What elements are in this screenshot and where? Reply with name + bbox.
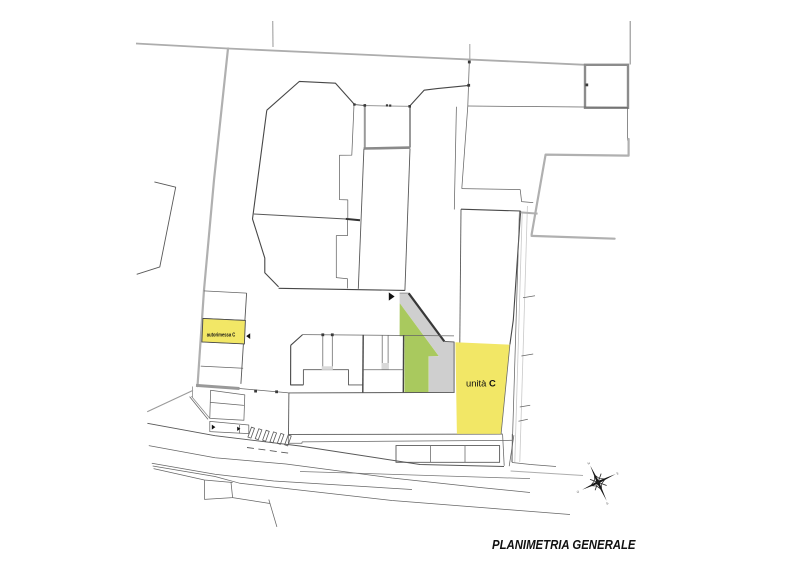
svg-text:autorimessa C: autorimessa C [207,332,236,338]
svg-text:PLANIMETRIA GENERALE: PLANIMETRIA GENERALE [492,537,637,552]
svg-text:unità C: unità C [466,378,496,389]
